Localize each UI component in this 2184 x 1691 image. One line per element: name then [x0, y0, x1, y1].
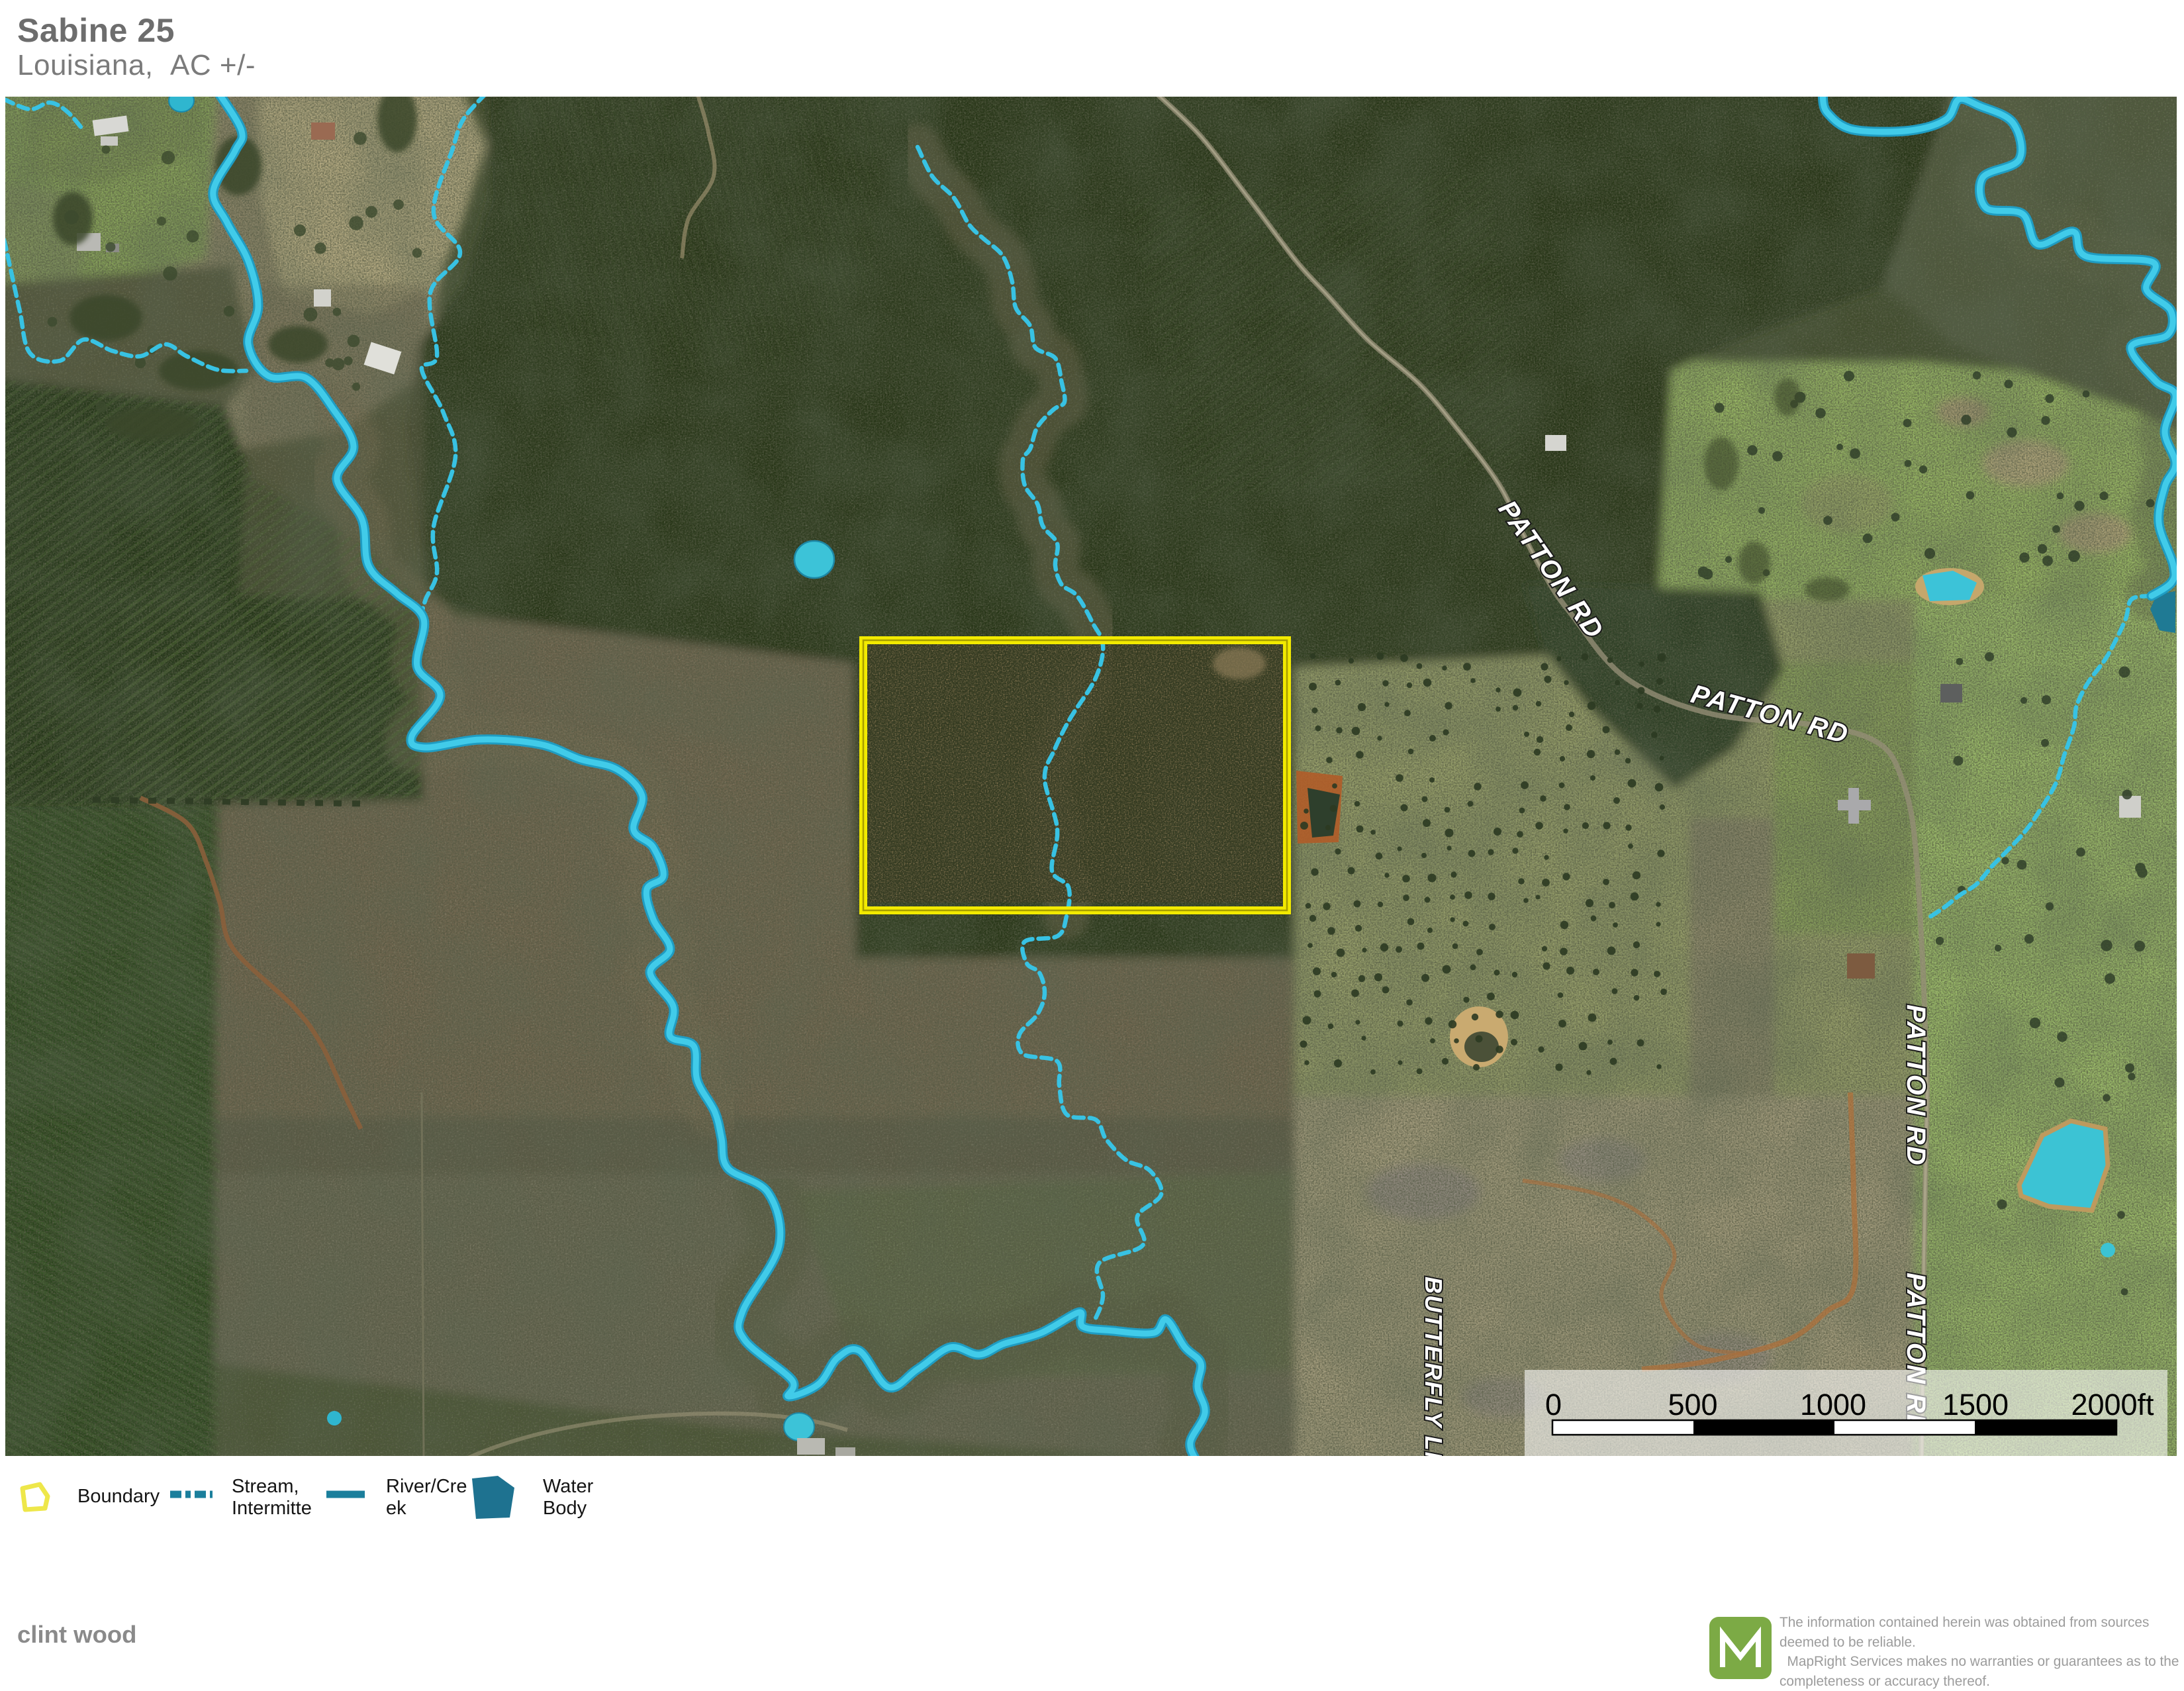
- svg-text:BUTTERFLY LN: BUTTERFLY LN: [1420, 1277, 1447, 1456]
- svg-text:PATTON RD: PATTON RD: [1901, 1004, 1930, 1167]
- svg-text:1000: 1000: [1800, 1388, 1866, 1422]
- svg-text:0: 0: [1545, 1388, 1562, 1422]
- svg-text:500: 500: [1668, 1388, 1717, 1422]
- svg-text:2000ft: 2000ft: [2071, 1388, 2154, 1422]
- svg-text:1500: 1500: [1942, 1388, 2009, 1422]
